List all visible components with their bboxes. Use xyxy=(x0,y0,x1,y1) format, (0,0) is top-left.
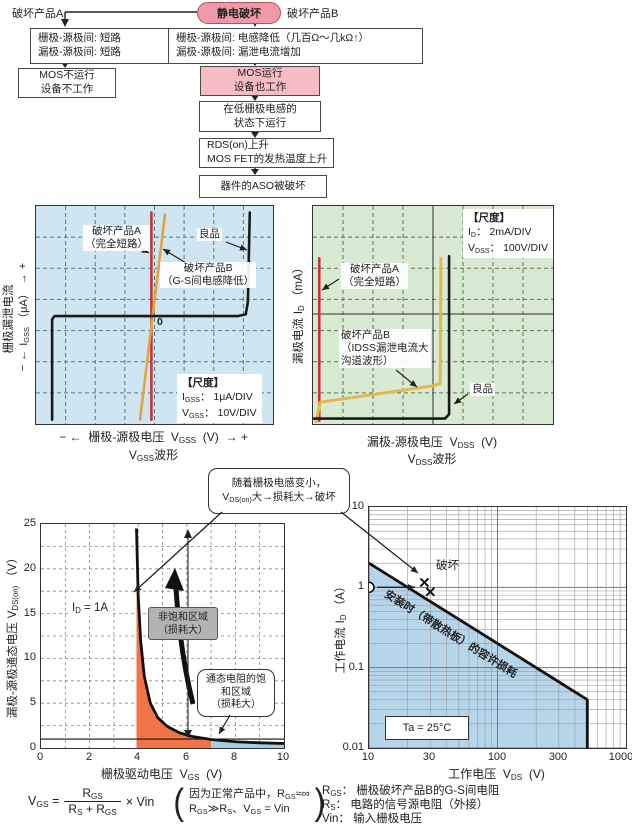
label-product-a: 破坏产品A（完全短路） xyxy=(341,263,408,289)
flow-box-b2: MOS运行 设备也工作 xyxy=(200,66,320,96)
flow-box-b5: 器件的ASO被破坏 xyxy=(199,175,327,198)
bl-xtick-0: 0 xyxy=(25,751,55,763)
scale-line2: VDSS： 100V/DIV xyxy=(468,241,548,256)
right-scope-ylabel-sym: ID （mA） xyxy=(290,262,306,314)
ta-box: Ta = 25°C xyxy=(385,716,469,740)
formula-note: 因为正常产品中，RGS≈∞ RGS≫RS、VGS = Vin xyxy=(189,787,310,816)
flow-box-b1-line1: 栅极-源极间: 电感降低（几百Ω～几kΩ↑） xyxy=(176,32,369,46)
bl-xtick-8: 8 xyxy=(219,751,249,763)
saturated-region-label: 通态电阻的饱和区域（损耗大） xyxy=(197,669,275,717)
label-product-a: 破坏产品A（完全短路） xyxy=(83,225,150,251)
flow-box-b3-line2: 状态下运行 xyxy=(234,117,287,131)
flow-box-b3: 在低栅极电感的 状态下运行 xyxy=(199,101,321,132)
flow-box-b1-line2: 漏极-源极间: 漏泄电流增加 xyxy=(176,46,301,60)
id-1a-label: ID = 1A xyxy=(70,601,110,616)
esd-node: 静电破坏 xyxy=(197,2,281,24)
rising-loss-arrow xyxy=(176,588,193,704)
left-scope-ylabel-cn: 栅极漏泄电流 xyxy=(0,279,16,359)
vgs-formula: VGS = RGS RS + RGS × Vin ( 因为正常产品中，RGS≈∞… xyxy=(28,786,325,817)
axis-arrow-right: → xyxy=(17,273,29,284)
left-scope-ylabel-sym: IGSS （μA） xyxy=(15,288,31,346)
scale-title: 【尺度】 xyxy=(468,211,548,225)
minus-sign: − xyxy=(17,365,29,371)
label-good: 良品 xyxy=(197,228,222,241)
branch-a-label: 破坏产品A xyxy=(12,5,63,21)
flow-box-b4-line2: MOS FET的发热温度上升 xyxy=(207,153,327,167)
flow-box-b2-line2: 设备也工作 xyxy=(234,81,287,95)
left-scope-yaxis: − ← IGSS （μA） → + xyxy=(15,232,31,402)
fraction-denominator: RS + RGS xyxy=(64,801,120,817)
scale-line1: IGSS： 1μA/DIV xyxy=(182,390,257,405)
zero-label: 0 xyxy=(155,316,165,329)
drain-leakage-scope: 【尺度】 ID： 2mA/DIV VDSS： 100V/DIV 破坏产品A（完全… xyxy=(312,205,554,425)
aso-chart-canvas xyxy=(369,507,626,748)
right-scope-waveform-label: VDSS波形 xyxy=(312,450,552,467)
break-label: 破坏 xyxy=(434,559,461,573)
plus-sign: + xyxy=(17,263,29,269)
flow-box-a1: 栅极-源极间: 短路 漏极-源极间: 短路 xyxy=(30,28,173,64)
scale-line2: VGSS： 10V/DIV xyxy=(182,406,257,421)
legend-vin: Vin： 输入栅极电压 xyxy=(322,810,422,826)
bl-ytick-15: 15 xyxy=(10,607,36,619)
scale-line1: ID： 2mA/DIV xyxy=(468,225,548,240)
left-scope-xlabel: − ← 栅极-源极电压 VGSS (V) → + xyxy=(35,428,272,445)
flow-box-b1: 栅极-源极间: 电感降低（几百Ω～几kΩ↑） 漏极-源极间: 漏泄电流增加 xyxy=(168,28,423,64)
branch-b-label: 破坏产品B xyxy=(287,5,338,21)
label-good: 良品 xyxy=(470,383,495,396)
right-scope-ylabel: 漏极电流 ID （mA） xyxy=(290,248,306,378)
br-xtick-30: 30 xyxy=(409,751,449,763)
flow-box-b3-line1: 在低栅极电感的 xyxy=(223,103,297,117)
br-ytick-1: 1 xyxy=(334,580,364,592)
br-xtick-100: 100 xyxy=(477,751,517,763)
scale-box: 【尺度】 IGSS： 1μA/DIV VGSS： 10V/DIV xyxy=(177,374,262,423)
br-xtick-1000: 1000 xyxy=(599,751,632,763)
inductance-note-bubble: 随着栅极电感变小， VDS(on)大→损耗大→破坏 xyxy=(208,468,350,514)
right-scope-xlabel: 漏极-源极电压 VDSS (V) xyxy=(312,433,552,450)
flow-box-b4: RDS(on)上升 MOS FET的发热温度上升 xyxy=(199,138,334,168)
unsaturated-region-label: 非饱和区域（损耗大） xyxy=(148,607,218,640)
flow-box-b2-line1: MOS运行 xyxy=(238,67,283,81)
bl-xlabel: 栅极驱动电压 VGS (V) xyxy=(40,765,283,782)
flow-box-b4-line1: RDS(on)上升 xyxy=(207,139,269,153)
gate-leakage-scope: 破坏产品A（完全短路） 破坏产品B（G-S间电感降低） 良品 0 【尺度】 IG… xyxy=(35,205,274,425)
bubble-line2: VDS(on)大→损耗大→破坏 xyxy=(222,490,336,505)
br-ytick-10: 10 xyxy=(334,500,364,512)
label-product-b: 破坏产品B（IDSS漏泄电流大沟道波形） xyxy=(339,329,431,368)
open-paren: ( xyxy=(173,784,184,819)
note-line1: 因为正常产品中，RGS≈∞ xyxy=(189,787,310,802)
scale-box: 【尺度】 ID： 2mA/DIV VDSS： 100V/DIV xyxy=(463,209,553,258)
bl-xtick-6: 6 xyxy=(171,751,201,763)
bl-ytick-10: 10 xyxy=(10,651,36,663)
br-ytick-01: 0.1 xyxy=(334,661,364,673)
bl-xtick-4: 4 xyxy=(122,751,152,763)
fraction-numerator: RGS xyxy=(78,786,106,801)
flow-box-a1-line2: 漏极-源极间: 短路 xyxy=(38,46,121,60)
flow-box-a2: MOS不运行 设备不工作 xyxy=(18,68,116,98)
label-product-b: 破坏产品B（G-S间电感降低） xyxy=(160,262,256,288)
flow-box-a2-line1: MOS不运行 xyxy=(39,69,94,83)
note-line2: RGS≫RS、VGS = Vin xyxy=(189,802,310,817)
br-xlabel: 工作电压 VDS (V) xyxy=(368,765,625,782)
bl-ytick-5: 5 xyxy=(10,696,36,708)
bl-xtick-10: 10 xyxy=(268,751,298,763)
flow-box-b5-line1: 器件的ASO被破坏 xyxy=(220,180,305,194)
bl-xtick-2: 2 xyxy=(74,751,104,763)
br-xtick-300: 300 xyxy=(538,751,578,763)
span-arrow-up xyxy=(184,529,192,538)
bl-ytick-20: 20 xyxy=(10,562,36,574)
formula-lhs: VGS = xyxy=(28,794,59,809)
formula-vin: × Vin xyxy=(126,795,155,809)
axis-arrow-left: ← xyxy=(17,350,29,361)
scale-title: 【尺度】 xyxy=(182,376,257,390)
bl-ytick-25: 25 xyxy=(10,517,36,529)
page: { "flow": { "esd": "静电破坏", "branch_a": "… xyxy=(0,0,632,820)
br-xtick-10: 10 xyxy=(348,751,388,763)
formula-fraction: RGS RS + RGS xyxy=(64,786,120,817)
aso-chart xyxy=(368,506,627,749)
bubble-line1: 随着栅极电感变小， xyxy=(232,476,327,490)
flow-box-a1-line1: 栅极-源极间: 短路 xyxy=(38,32,121,46)
rising-loss-arrowhead xyxy=(165,568,184,591)
left-scope-waveform-label: VGSS波形 xyxy=(35,446,272,463)
flow-box-a2-line2: 设备不工作 xyxy=(41,83,94,97)
